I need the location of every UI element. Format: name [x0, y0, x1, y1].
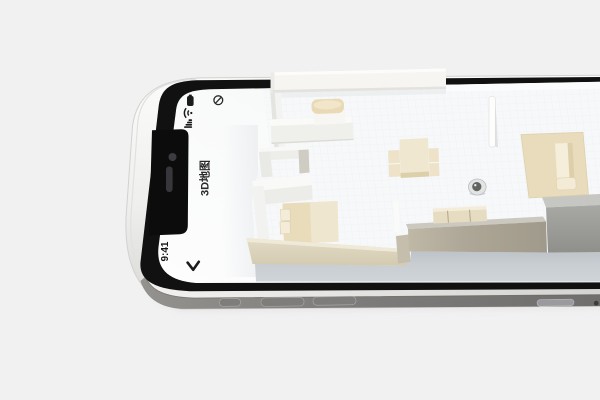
svg-text:3D地图: 3D地图: [197, 160, 211, 196]
svg-text:9:41: 9:41: [160, 241, 171, 261]
